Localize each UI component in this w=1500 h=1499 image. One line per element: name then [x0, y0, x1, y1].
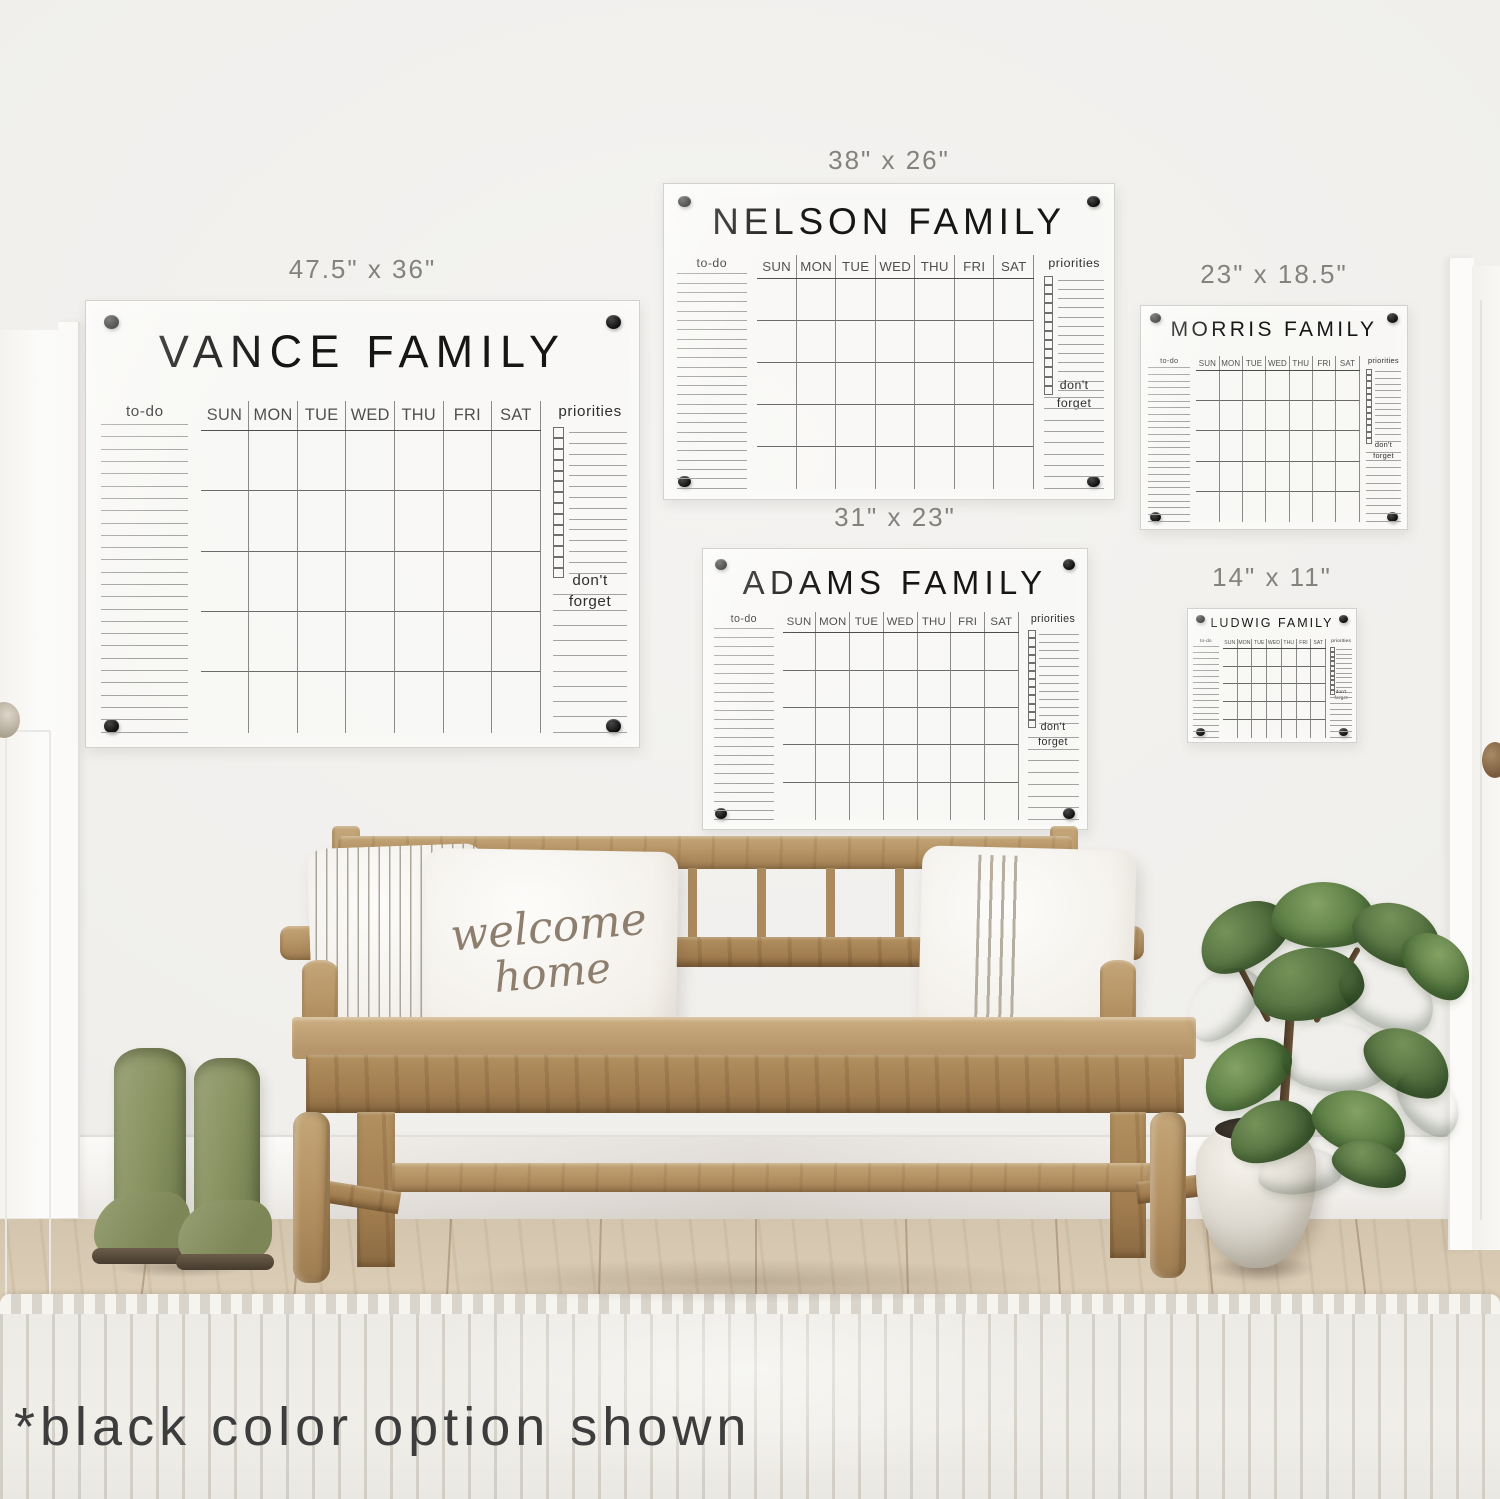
day-cell	[1223, 667, 1238, 685]
day-cell	[1336, 401, 1359, 431]
ruled-line	[101, 732, 188, 733]
ruled-line	[1366, 490, 1401, 491]
month-grid	[1223, 648, 1326, 738]
calendar-adams: 31" x 23" ADAMS FAMILY to-doSUNMONTUEWED…	[702, 496, 1088, 830]
ruled-line	[1366, 483, 1401, 484]
day-cell	[492, 431, 541, 491]
day-cell	[876, 447, 916, 489]
day-cell	[951, 671, 985, 708]
ruled-line	[1366, 467, 1401, 468]
day-cell	[850, 783, 884, 820]
ruled-line	[1366, 452, 1401, 453]
day-header: WED	[346, 401, 395, 430]
ruled-line	[1148, 481, 1190, 482]
priority-row	[553, 514, 627, 525]
day-cell	[884, 633, 918, 670]
day-header: SAT	[985, 612, 1019, 632]
ruled-line	[1039, 707, 1078, 708]
ruled-line	[1330, 697, 1352, 698]
ruled-line	[569, 465, 627, 466]
dont-forget-label: don't forget	[1028, 720, 1079, 736]
dont-forget-label: don't forget	[1044, 377, 1104, 396]
ruled-line	[1028, 807, 1079, 808]
todo-label: to-do	[1148, 356, 1190, 367]
day-cell	[298, 672, 347, 732]
ruled-line	[1375, 428, 1402, 429]
ruled-line	[677, 320, 748, 321]
day-cell	[298, 612, 347, 672]
ruled-line	[714, 773, 774, 774]
day-cell	[1313, 371, 1336, 401]
day-cell	[1290, 492, 1313, 522]
bench-floor-shadow	[310, 1250, 1190, 1312]
checkbox	[553, 427, 564, 438]
day-header: MON	[249, 401, 298, 430]
bench-seat-apron	[306, 1055, 1184, 1113]
checkbox	[1044, 340, 1053, 349]
day-cell	[951, 745, 985, 782]
ruled-line	[569, 540, 627, 541]
ruled-line	[1039, 658, 1078, 659]
day-cell	[1223, 720, 1238, 738]
day-cell	[1243, 462, 1266, 492]
checkbox	[1044, 331, 1053, 340]
ruled-line	[1336, 663, 1352, 664]
day-cell	[797, 363, 837, 405]
day-cell	[757, 321, 797, 363]
day-cell	[1336, 431, 1359, 461]
priority-row	[553, 449, 627, 460]
priority-row	[553, 481, 627, 492]
day-cell	[395, 612, 444, 672]
dont-forget-lines	[1330, 697, 1352, 738]
ruled-line	[677, 311, 748, 312]
ruled-line	[1366, 475, 1401, 476]
day-cell	[249, 431, 298, 491]
ruled-line	[101, 707, 188, 708]
day-cell	[876, 321, 916, 363]
ruled-line	[1028, 749, 1079, 750]
ruled-line	[1375, 371, 1402, 372]
ruled-line	[1058, 307, 1105, 308]
checkbox	[1044, 358, 1053, 367]
ruled-line	[1148, 401, 1190, 402]
calendar-title: ADAMS FAMILY	[703, 564, 1087, 602]
day-cell	[1196, 431, 1219, 461]
checkbox	[1044, 313, 1053, 322]
day-cell	[1311, 649, 1326, 667]
day-cell	[994, 279, 1034, 321]
day-header: TUE	[850, 612, 884, 632]
ruled-line	[553, 625, 627, 626]
calendar-body: to-doSUNMONTUEWEDTHUFRISATprioritiesdon'…	[677, 255, 1105, 489]
ruled-line	[1366, 505, 1401, 506]
ruled-line	[569, 562, 627, 563]
ruled-line	[569, 529, 627, 530]
ruled-line	[1366, 521, 1401, 522]
ruled-line	[714, 801, 774, 802]
ruled-line	[677, 385, 748, 386]
priority-row	[1044, 285, 1104, 294]
ruled-line	[1330, 703, 1352, 704]
day-cell	[1311, 684, 1326, 702]
priorities-list	[1330, 647, 1352, 689]
priority-row	[553, 525, 627, 536]
day-cell	[1311, 667, 1326, 685]
ruled-line	[1193, 707, 1219, 708]
day-header: THU	[915, 255, 955, 278]
day-cell	[249, 491, 298, 551]
priorities-column: prioritiesdon't forget	[1028, 612, 1079, 820]
ruled-line	[1058, 335, 1105, 336]
day-header: SUN	[1196, 356, 1219, 370]
day-cell	[492, 612, 541, 672]
ruled-line	[1028, 760, 1079, 761]
ruled-line	[714, 819, 774, 820]
todo-column: to-do	[714, 612, 774, 820]
calendar-title: NELSON FAMILY	[664, 201, 1114, 243]
ruled-line	[1336, 649, 1352, 650]
ruled-line	[714, 701, 774, 702]
ruled-line	[569, 497, 627, 498]
ruled-line	[1193, 737, 1219, 738]
ruled-line	[1375, 403, 1402, 404]
ruled-line	[1193, 652, 1219, 653]
ruled-line	[714, 664, 774, 665]
calendar-grid: SUNMONTUEWEDTHUFRISAT	[1223, 639, 1326, 738]
day-cell	[783, 745, 817, 782]
day-cell	[1238, 702, 1253, 720]
ruled-line	[1193, 713, 1219, 714]
todo-lines	[1193, 646, 1219, 738]
priority-row	[1028, 679, 1079, 687]
ruled-line	[1336, 668, 1352, 669]
ruled-line	[1193, 719, 1219, 720]
priority-row	[553, 438, 627, 449]
priority-row	[1028, 655, 1079, 663]
day-cell	[346, 491, 395, 551]
ruled-line	[569, 432, 627, 433]
priority-row	[1028, 704, 1079, 712]
calendar-grid: SUNMONTUEWEDTHUFRISAT	[757, 255, 1034, 489]
day-header: THU	[1282, 639, 1297, 648]
ruled-line	[101, 461, 188, 462]
ruled-line	[677, 348, 748, 349]
ruled-line	[1058, 298, 1105, 299]
ruled-line	[1148, 467, 1190, 468]
day-cell	[876, 363, 916, 405]
day-cell	[201, 612, 250, 672]
ruled-line	[569, 551, 627, 552]
day-cell	[850, 708, 884, 745]
checkbox	[553, 438, 564, 449]
ruled-line	[714, 655, 774, 656]
ruled-line	[677, 413, 748, 414]
ruled-line	[101, 596, 188, 597]
checkbox	[1028, 695, 1036, 703]
day-cell	[797, 279, 837, 321]
ruled-line	[677, 376, 748, 377]
day-cell	[1220, 371, 1243, 401]
priority-row	[553, 460, 627, 471]
ruled-line	[1375, 415, 1402, 416]
priority-row	[1044, 276, 1104, 285]
ruled-line	[1148, 427, 1190, 428]
day-cell	[249, 612, 298, 672]
priority-row	[1028, 663, 1079, 671]
day-cell	[783, 708, 817, 745]
day-cell	[918, 745, 952, 782]
priority-row	[1044, 367, 1104, 376]
priorities-column: prioritiesdon't forget	[1044, 255, 1104, 489]
day-cell	[985, 708, 1019, 745]
day-cell	[492, 672, 541, 732]
calendar-grid: SUNMONTUEWEDTHUFRISAT	[783, 612, 1019, 820]
day-cell	[1223, 649, 1238, 667]
ruled-line	[1148, 394, 1190, 395]
day-cell	[298, 552, 347, 612]
day-header: WED	[1267, 639, 1282, 648]
day-cell	[1297, 649, 1312, 667]
checkbox	[1044, 276, 1053, 285]
ruled-line	[1148, 407, 1190, 408]
day-header: TUE	[1252, 639, 1267, 648]
ruled-line	[714, 783, 774, 784]
day-cell	[492, 491, 541, 551]
ruled-line	[553, 655, 627, 656]
priority-row	[553, 492, 627, 503]
dont-forget-label: don't forget	[1330, 690, 1352, 697]
day-cell	[1238, 667, 1253, 685]
checkbox	[553, 471, 564, 482]
todo-lines	[714, 628, 774, 820]
checkbox	[553, 535, 564, 546]
day-cell	[1336, 371, 1359, 401]
day-header: FRI	[1297, 639, 1312, 648]
ruled-line	[101, 670, 188, 671]
priority-row	[1044, 331, 1104, 340]
day-cell	[1220, 492, 1243, 522]
ruled-line	[1028, 784, 1079, 785]
size-label: 47.5" x 36"	[45, 254, 680, 294]
calendar-morris: 23" x 18.5" MORRIS FAMILY to-doSUNMONTUE…	[1140, 253, 1408, 530]
day-cell	[346, 552, 395, 612]
ruled-line	[714, 628, 774, 629]
day-cell	[1252, 667, 1267, 685]
day-cell	[395, 552, 444, 612]
priorities-label: priorities	[1028, 612, 1079, 628]
ruled-line	[553, 701, 627, 702]
day-cell	[955, 279, 995, 321]
day-cell	[955, 405, 995, 447]
ruled-line	[1148, 441, 1190, 442]
day-cell	[1266, 401, 1289, 431]
month-grid	[1196, 370, 1360, 522]
ruled-line	[101, 719, 188, 720]
checkbox	[553, 546, 564, 557]
ruled-line	[553, 716, 627, 717]
day-cell	[884, 745, 918, 782]
ruled-line	[677, 283, 748, 284]
dont-forget-lines	[553, 594, 627, 732]
day-cell	[884, 708, 918, 745]
ruled-line	[1193, 670, 1219, 671]
todo-column: to-do	[101, 401, 188, 732]
day-cell	[444, 431, 493, 491]
day-cell	[797, 405, 837, 447]
day-cell	[915, 447, 955, 489]
day-cell	[1220, 462, 1243, 492]
day-cell	[816, 671, 850, 708]
todo-lines	[101, 424, 188, 733]
ruled-line	[1044, 431, 1104, 432]
day-cell	[1252, 649, 1267, 667]
calendar-ludwig: 14" x 11" LUDWIG FAMILY to-doSUNMONTUEWE…	[1187, 556, 1357, 743]
ruled-line	[553, 671, 627, 672]
day-cell	[1196, 462, 1219, 492]
ruled-line	[1193, 646, 1219, 647]
ruled-line	[1148, 461, 1190, 462]
day-cell	[1311, 720, 1326, 738]
calendar-title: VANCE FAMILY	[86, 326, 639, 378]
ruled-line	[1366, 513, 1401, 514]
day-cell	[836, 405, 876, 447]
ruled-line	[1028, 796, 1079, 797]
day-cell	[1290, 371, 1313, 401]
acrylic-board: LUDWIG FAMILY to-doSUNMONTUEWEDTHUFRISAT…	[1187, 608, 1357, 743]
day-cell	[1282, 702, 1297, 720]
calendar-body: to-doSUNMONTUEWEDTHUFRISATprioritiesdon'…	[1148, 356, 1401, 522]
day-cell	[201, 491, 250, 551]
ruled-line	[1148, 487, 1190, 488]
day-header: SAT	[1336, 356, 1359, 370]
ruled-line	[1039, 642, 1078, 643]
day-cell	[395, 491, 444, 551]
day-header: SAT	[994, 255, 1034, 278]
ruled-line	[1193, 694, 1219, 695]
day-cell	[1196, 371, 1219, 401]
ruled-line	[1375, 390, 1402, 391]
right-boot-sole	[176, 1254, 274, 1270]
day-cell	[783, 783, 817, 820]
day-cell	[1267, 667, 1282, 685]
ruled-line	[101, 473, 188, 474]
day-cell	[1297, 684, 1312, 702]
priority-row	[553, 557, 627, 568]
ruled-line	[714, 755, 774, 756]
day-cell	[915, 363, 955, 405]
ruled-line	[1193, 682, 1219, 683]
todo-label: to-do	[1193, 639, 1219, 646]
day-cell	[1336, 492, 1359, 522]
day-cell	[1266, 431, 1289, 461]
ruled-line	[1148, 367, 1190, 368]
ruled-line	[1148, 501, 1190, 502]
day-header: THU	[395, 401, 444, 430]
day-cell	[1243, 371, 1266, 401]
priority-row	[1044, 313, 1104, 322]
day-header: SUN	[201, 401, 250, 430]
day-cell	[955, 363, 995, 405]
day-cell	[1311, 702, 1326, 720]
ruled-line	[1148, 447, 1190, 448]
ruled-line	[101, 498, 188, 499]
day-header: MON	[1238, 639, 1253, 648]
ruled-line	[1044, 442, 1104, 443]
ruled-line	[1148, 374, 1190, 375]
day-cell	[1252, 720, 1267, 738]
ruled-line	[1193, 731, 1219, 732]
day-cell	[850, 745, 884, 782]
left-door	[0, 330, 60, 1218]
day-header: SUN	[783, 612, 817, 632]
ruled-line	[1336, 658, 1352, 659]
priority-row	[1044, 294, 1104, 303]
ruled-line	[1330, 714, 1352, 715]
calendar-title: LUDWIG FAMILY	[1188, 616, 1356, 630]
ruled-line	[1375, 422, 1402, 423]
calendar-vance: 47.5" x 36" VANCE FAMILY to-doSUNMONTUEW…	[85, 248, 640, 748]
ruled-line	[677, 469, 748, 470]
day-cell	[1267, 702, 1282, 720]
day-header: SUN	[757, 255, 797, 278]
size-label: 31" x 23"	[662, 502, 1128, 542]
ruled-line	[1039, 666, 1078, 667]
ruled-line	[101, 559, 188, 560]
ruled-line	[677, 329, 748, 330]
ruled-line	[1148, 414, 1190, 415]
day-cell	[1243, 401, 1266, 431]
ruled-line	[714, 646, 774, 647]
priority-row	[1028, 630, 1079, 638]
day-header: TUE	[836, 255, 876, 278]
checkbox	[1044, 322, 1053, 331]
ruled-line	[1058, 362, 1105, 363]
ruled-line	[101, 695, 188, 696]
day-cell	[1313, 431, 1336, 461]
ruled-line	[1336, 673, 1352, 674]
ruled-line	[1375, 397, 1402, 398]
day-cell	[1252, 702, 1267, 720]
priorities-label: priorities	[1330, 639, 1352, 646]
calendar-nelson: 38" x 26" NELSON FAMILY to-doSUNMONTUEWE…	[663, 131, 1115, 500]
ruled-line	[1193, 725, 1219, 726]
ruled-line	[1039, 699, 1078, 700]
ruled-line	[714, 737, 774, 738]
ruled-line	[1044, 454, 1104, 455]
bench-stretcher	[392, 1163, 1150, 1192]
day-cell	[1252, 684, 1267, 702]
left-door-frame	[58, 322, 80, 1218]
ruled-line	[677, 301, 748, 302]
ruled-line	[1375, 434, 1402, 435]
ruled-line	[677, 422, 748, 423]
day-header: MON	[1220, 356, 1243, 370]
ruled-line	[1148, 474, 1190, 475]
ruled-line	[1336, 687, 1352, 688]
ruled-line	[1148, 514, 1190, 515]
day-cell	[1266, 371, 1289, 401]
checkbox	[553, 525, 564, 536]
ruled-line	[677, 432, 748, 433]
ruled-line	[101, 523, 188, 524]
priorities-label: priorities	[553, 401, 627, 424]
checkbox	[1044, 349, 1053, 358]
ruled-line	[1375, 409, 1402, 410]
day-header: SAT	[492, 401, 541, 430]
ruled-line	[1366, 498, 1401, 499]
ruled-line	[677, 339, 748, 340]
